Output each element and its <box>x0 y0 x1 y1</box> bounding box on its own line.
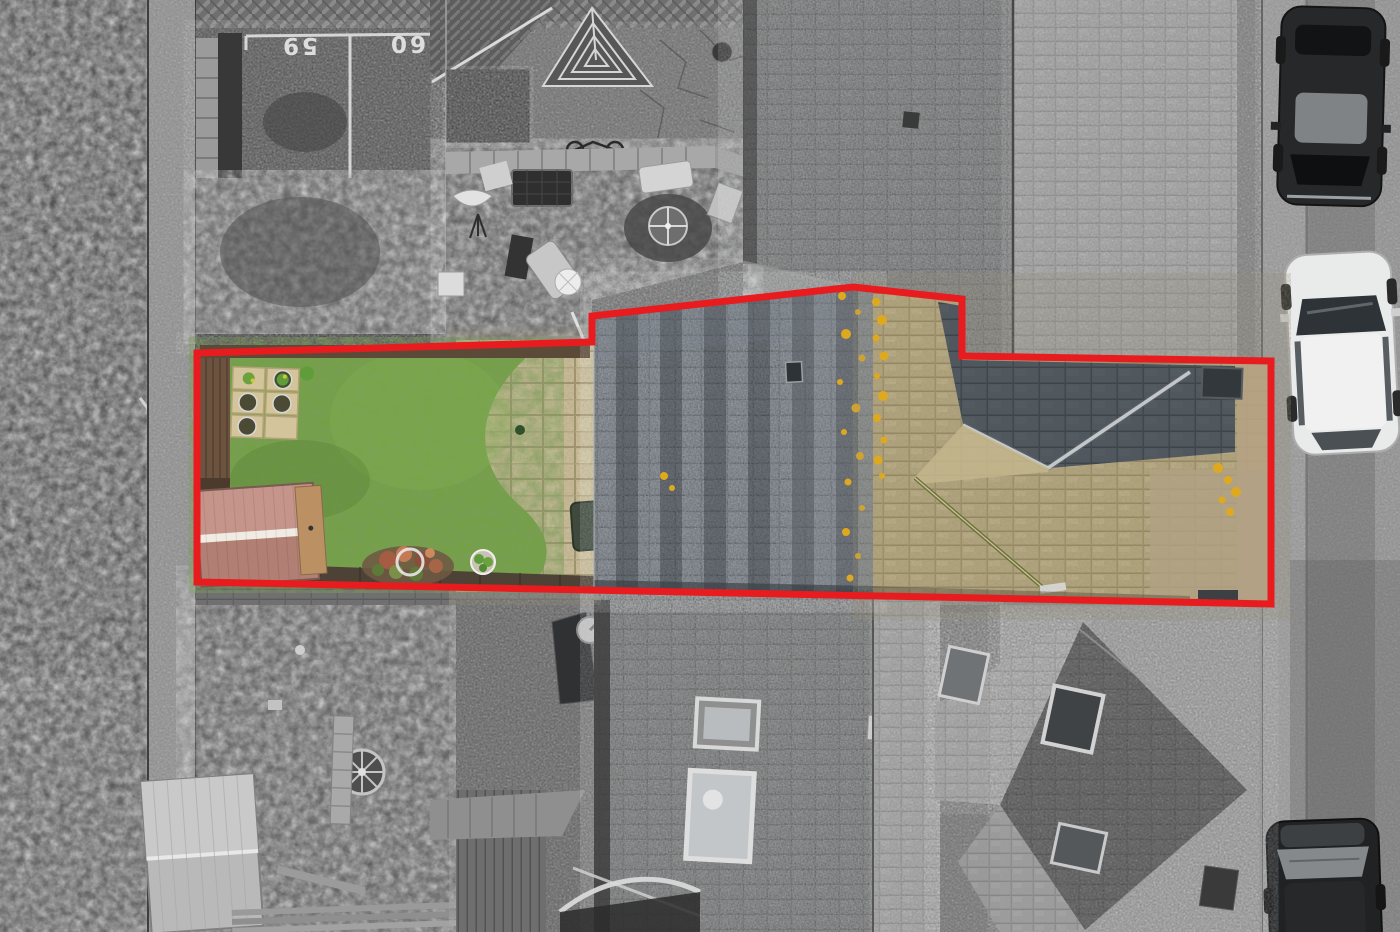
wheel <box>1263 888 1274 914</box>
roof-panel <box>1300 333 1387 431</box>
roof-panel <box>1284 881 1366 932</box>
roof-reflection <box>1294 92 1367 144</box>
wheelie-bin <box>1201 367 1242 398</box>
bonnet <box>1280 823 1365 848</box>
subject-house-grey-roof <box>430 591 940 932</box>
roof-window-3 <box>1043 685 1104 752</box>
bay-number-60: 60 <box>388 30 426 56</box>
lawn-shadow-patch <box>220 197 380 307</box>
garden-item-small <box>268 700 282 710</box>
windscreen <box>1294 295 1386 336</box>
side-fence <box>200 358 230 478</box>
tree-canopy <box>0 690 150 932</box>
flower-bed <box>362 546 454 586</box>
white-tray <box>438 272 464 296</box>
rotary-dryer <box>649 207 687 245</box>
garden-item <box>295 645 305 655</box>
dark-car-bottom <box>1261 818 1387 932</box>
roof-window-4 <box>1051 823 1106 872</box>
driveway-lower <box>1150 470 1271 604</box>
potted-plant <box>471 550 495 574</box>
white-car <box>1277 250 1400 456</box>
roof-window-1 <box>695 698 759 749</box>
planter-pot <box>712 42 732 62</box>
roof-edge-shadow <box>743 0 757 264</box>
bay-number-59: 59 <box>280 32 318 58</box>
rear-window <box>1295 24 1372 56</box>
mirror-left <box>1271 122 1281 130</box>
aerial-photo-canvas: 59 60 <box>0 0 1400 932</box>
ladder-plank <box>330 716 354 825</box>
dark-edge-strip <box>218 33 242 180</box>
garden-table <box>555 269 581 295</box>
neighbour-rear-hip <box>935 605 1262 932</box>
garden-shed <box>195 482 327 587</box>
windscreen <box>1289 154 1370 186</box>
gutter-alley <box>1237 0 1262 362</box>
mirror-right <box>1391 308 1400 316</box>
dark-car-top <box>1269 6 1394 207</box>
roof-vent <box>785 362 802 383</box>
windscreen <box>1277 846 1370 879</box>
parking-bays: 59 60 <box>196 28 446 180</box>
mirror-right <box>1381 125 1391 133</box>
roof-window-5 <box>939 646 989 703</box>
wheel <box>1375 884 1386 910</box>
tarmac-stain <box>263 92 347 152</box>
hip-side-light <box>873 597 940 932</box>
aerial-photo: 59 60 <box>0 0 1400 932</box>
roof-window-2 <box>686 770 755 861</box>
raised-bed <box>447 70 529 142</box>
roof-vent-grey <box>902 111 920 129</box>
mirror-left <box>1280 314 1289 322</box>
rear-window <box>1311 429 1382 451</box>
lawn-spot <box>515 425 525 435</box>
roof-light-plane <box>1013 0 1237 362</box>
white-shed <box>141 774 263 932</box>
wheelie-bin-grey <box>1199 866 1238 910</box>
front-roof <box>594 287 873 597</box>
